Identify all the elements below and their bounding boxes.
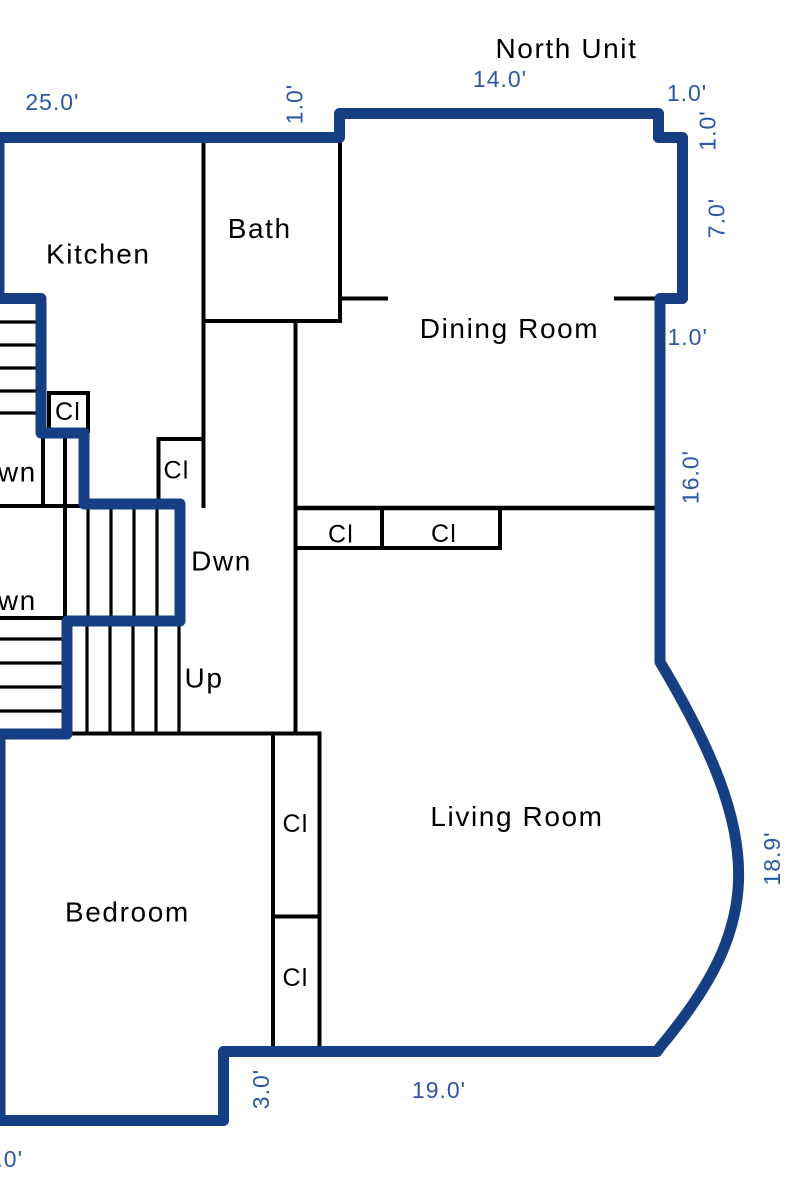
svg-text:Dining Room: Dining Room [420, 313, 599, 344]
svg-text:14.0': 14.0' [473, 66, 527, 92]
svg-text:Up: Up [185, 663, 224, 694]
svg-text:Cl: Cl [55, 398, 81, 426]
svg-text:1.0': 1.0' [668, 324, 708, 350]
svg-text:Bedroom: Bedroom [65, 897, 190, 928]
svg-text:16.0': 16.0' [678, 450, 704, 504]
svg-text:18.9': 18.9' [759, 831, 785, 885]
svg-text:Kitchen: Kitchen [46, 239, 151, 270]
svg-text:5.0': 5.0' [0, 1146, 23, 1172]
svg-text:Cl: Cl [282, 810, 308, 838]
svg-text:Cl: Cl [328, 521, 354, 549]
svg-text:1.0': 1.0' [695, 110, 721, 150]
svg-text:Dwn: Dwn [0, 585, 37, 616]
svg-text:Dwn: Dwn [191, 546, 252, 577]
svg-text:1.0': 1.0' [282, 84, 308, 124]
svg-text:Dwn: Dwn [0, 457, 37, 488]
svg-text:25.0': 25.0' [25, 89, 79, 115]
svg-text:Living Room: Living Room [430, 801, 603, 832]
svg-text:3.0': 3.0' [248, 1069, 274, 1109]
svg-text:Cl: Cl [163, 457, 189, 485]
svg-text:North Unit: North Unit [495, 33, 637, 64]
svg-text:1.0': 1.0' [667, 80, 707, 106]
svg-text:Bath: Bath [228, 213, 292, 244]
svg-text:Cl: Cl [431, 520, 457, 548]
svg-text:7.0': 7.0' [704, 198, 730, 238]
svg-text:19.0': 19.0' [412, 1077, 466, 1103]
svg-text:Cl: Cl [282, 964, 308, 992]
